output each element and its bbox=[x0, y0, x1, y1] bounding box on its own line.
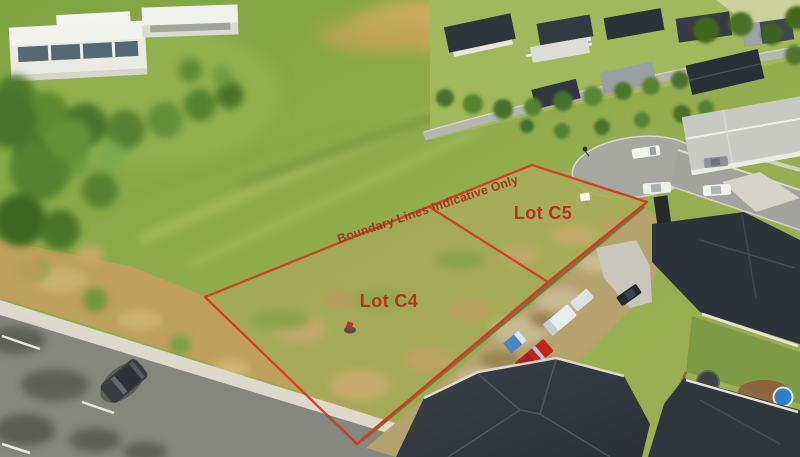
lot-c4-label: Lot C4 bbox=[360, 291, 418, 311]
lot-c5-label: Lot C5 bbox=[514, 203, 572, 223]
aerial-photo-canvas: Boundary Lines Indicative Only Lot C4 Lo… bbox=[0, 0, 800, 457]
car-white-2 bbox=[703, 184, 732, 197]
car-white-1 bbox=[643, 182, 672, 195]
person bbox=[583, 147, 588, 152]
aerial-photo: Boundary Lines Indicative Only Lot C4 Lo… bbox=[0, 0, 800, 457]
estate-house-veranda bbox=[142, 4, 239, 37]
